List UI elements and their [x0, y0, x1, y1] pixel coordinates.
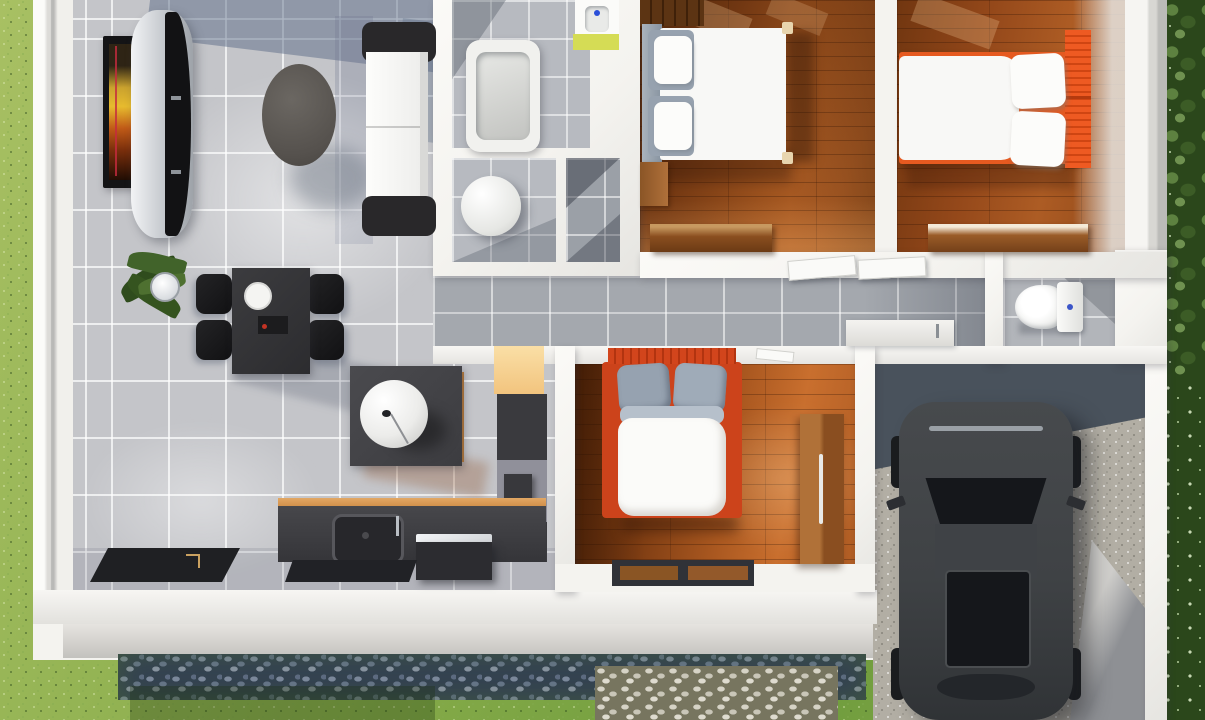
sink-drain [362, 532, 369, 539]
wall-art-red-line [115, 46, 117, 176]
bed-1 [642, 20, 814, 168]
bed1-post-bottom [782, 152, 793, 164]
bathtub-well [476, 52, 530, 140]
kitchen-island [350, 366, 462, 466]
bed3-duvet [618, 418, 726, 516]
bedroom1-nightstand [640, 162, 668, 206]
shower-shade-a [566, 158, 620, 208]
door-mat-1 [620, 566, 678, 580]
floor-mat-left [90, 548, 240, 582]
mat-corner-mark [186, 554, 200, 568]
shrubs-right-bottom [1162, 380, 1205, 720]
bathroom-block [433, 0, 640, 276]
floor-plan-scene [0, 0, 1205, 720]
bed-2 [897, 28, 1093, 172]
door-mat-2 [688, 566, 748, 580]
kitchen-sink [332, 514, 404, 564]
car-front-trim [929, 426, 1043, 431]
house-footing [63, 618, 875, 658]
garage-right-wall [1145, 346, 1167, 720]
appliance-box [416, 542, 492, 580]
sofa-seam [366, 126, 428, 128]
tv-cabinet [131, 10, 193, 238]
shower-floor [566, 158, 620, 262]
kitchen-counter [278, 506, 546, 562]
bedroom3-left-wall [555, 346, 575, 592]
bed1-side-shadow [786, 32, 814, 162]
bed3-headboard [608, 348, 736, 364]
bed1-post-top [782, 22, 793, 34]
dining-plate [244, 282, 272, 310]
door-mats [612, 560, 754, 586]
wardrobe-handle [819, 454, 823, 524]
tv-cabinet-shelf1 [171, 96, 181, 100]
bathtub [466, 40, 540, 152]
wc-cylinder [461, 176, 521, 236]
bed2-headboard-split [1065, 96, 1091, 99]
left-outer-wall-face [33, 0, 73, 622]
dining-chair-2 [196, 320, 232, 360]
cobblestone-path [595, 666, 838, 720]
plant-pot [150, 272, 180, 302]
dining-tray-red [262, 324, 267, 329]
dining-chair-1 [196, 274, 232, 314]
car [893, 402, 1079, 720]
tv-cabinet-shelf2 [171, 170, 181, 174]
bed2-duvet [899, 56, 1019, 160]
tall-unit-top [494, 346, 544, 394]
car-rear-window [937, 674, 1035, 700]
vanity-faucet [594, 10, 600, 16]
toilet-unit [1015, 282, 1095, 334]
bedroom2-dresser [928, 224, 1088, 252]
potted-plant [116, 246, 202, 334]
dining-table [232, 268, 310, 374]
bedroom1-dresser [650, 224, 772, 252]
toilet-button [1067, 304, 1073, 310]
coffee-table [262, 64, 336, 166]
hall-door-2 [858, 256, 927, 280]
bed1-pillow1 [654, 36, 692, 84]
bed2-pillow1 [1010, 53, 1067, 110]
car-windshield [923, 478, 1049, 526]
sofa-armrest-bottom [362, 196, 436, 236]
vanity-cabinet-lime [573, 34, 619, 50]
car-sunroof [945, 570, 1031, 668]
bed2-headboard [1065, 30, 1091, 168]
sofa-seat [366, 52, 428, 204]
bottom-outer-wall [33, 590, 877, 624]
bed-3 [602, 348, 744, 526]
sink-faucet [396, 516, 399, 536]
bedroom3-wardrobe [800, 414, 844, 564]
laundry-faucet [936, 324, 939, 338]
bedroom3-right-wall [855, 346, 875, 592]
bed1-pillow2 [654, 102, 692, 150]
shower-shade-b [566, 214, 620, 262]
sphere-lamp [360, 380, 428, 448]
sofa [366, 22, 432, 236]
dining-chair-4 [308, 320, 344, 360]
bed3-shadow [622, 516, 738, 532]
floor-mat-center [285, 560, 417, 582]
dining-chair-3 [308, 274, 344, 314]
house-cast-shadow [130, 686, 435, 720]
sofa-back-edge [420, 52, 428, 204]
bed2-pillow2 [1010, 111, 1067, 168]
